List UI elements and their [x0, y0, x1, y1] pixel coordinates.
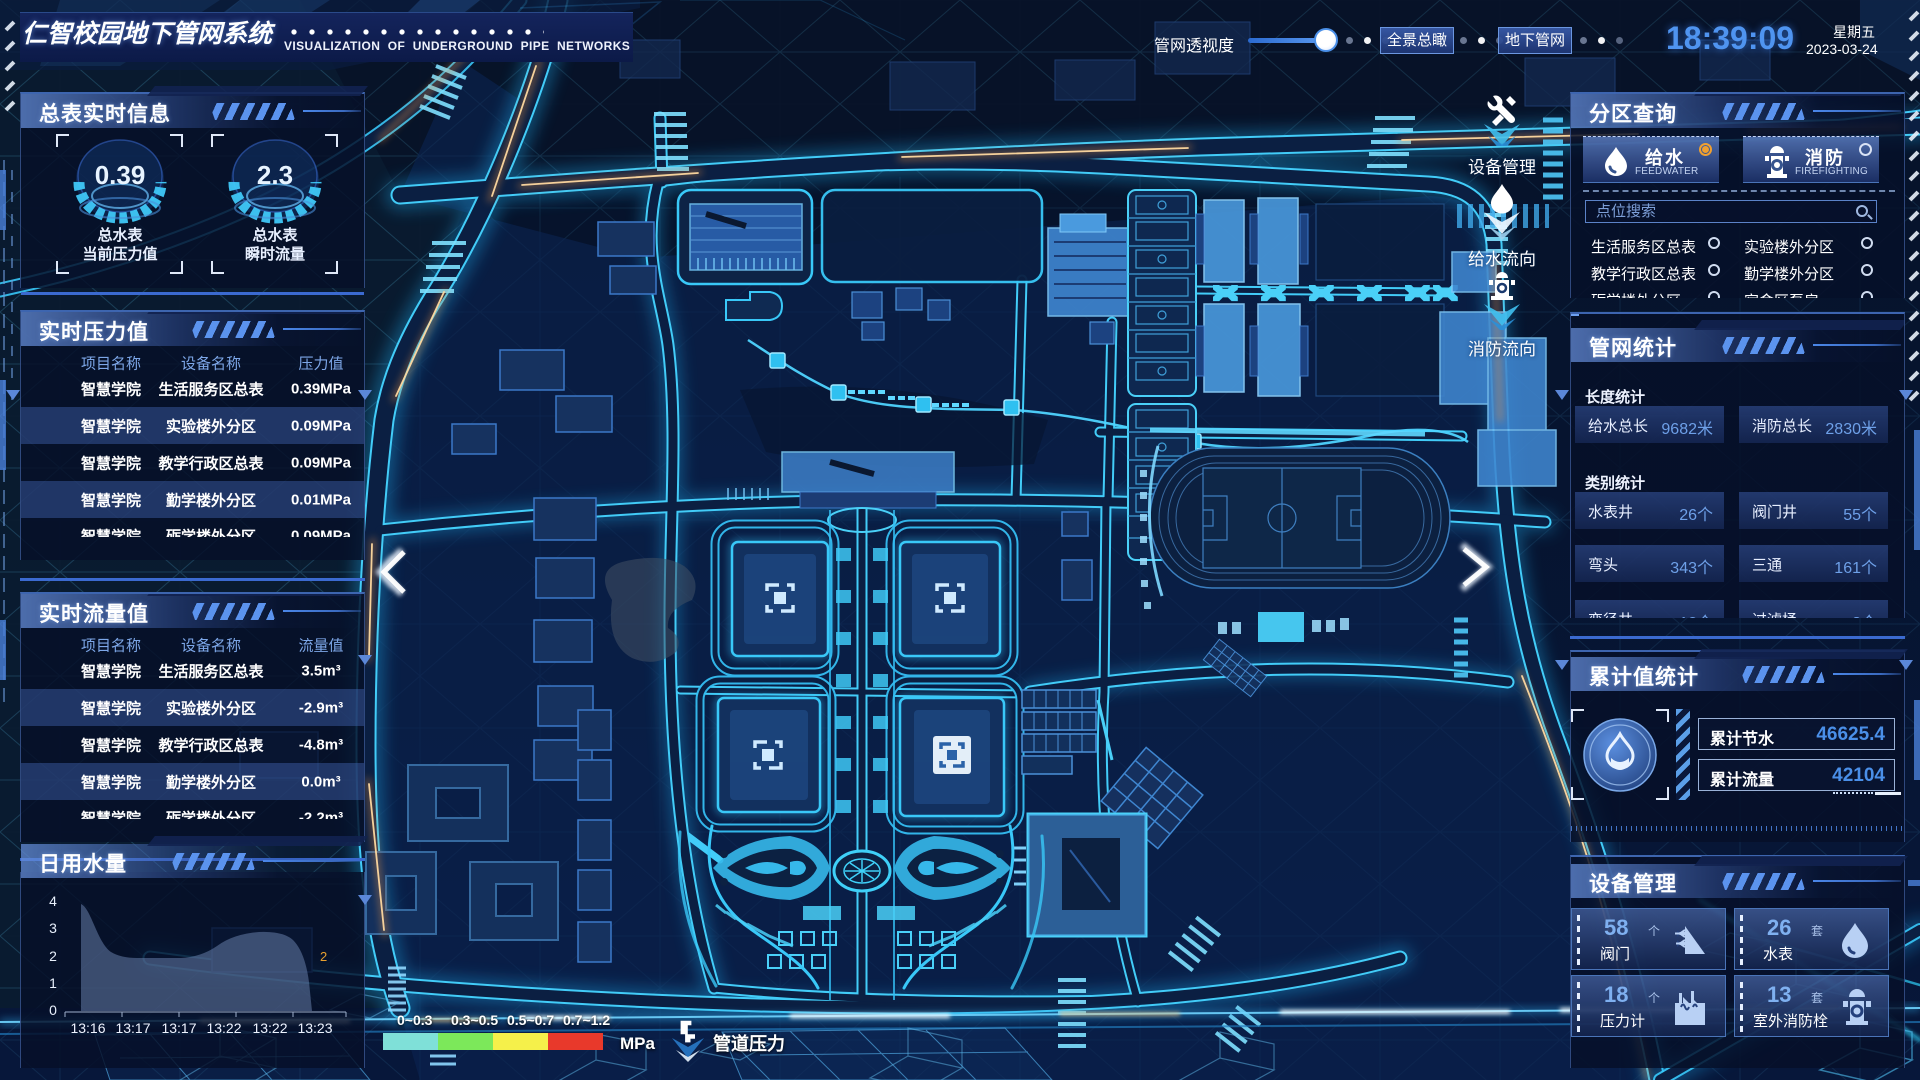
svg-text:13:22: 13:22 [206, 1020, 241, 1036]
svg-text:2.3: 2.3 [257, 160, 293, 190]
svg-text:2: 2 [49, 948, 57, 964]
svg-text:0.39: 0.39 [95, 160, 146, 190]
svg-text:1: 1 [49, 975, 57, 991]
svg-text:3: 3 [49, 920, 57, 936]
svg-text:13:17: 13:17 [161, 1020, 196, 1036]
svg-text:13:23: 13:23 [297, 1020, 332, 1036]
svg-text:13:17: 13:17 [115, 1020, 150, 1036]
svg-text:2: 2 [320, 949, 327, 964]
svg-text:13:22: 13:22 [252, 1020, 287, 1036]
svg-text:13:16: 13:16 [70, 1020, 105, 1036]
svg-text:4: 4 [49, 893, 57, 909]
svg-text:0: 0 [49, 1002, 57, 1018]
